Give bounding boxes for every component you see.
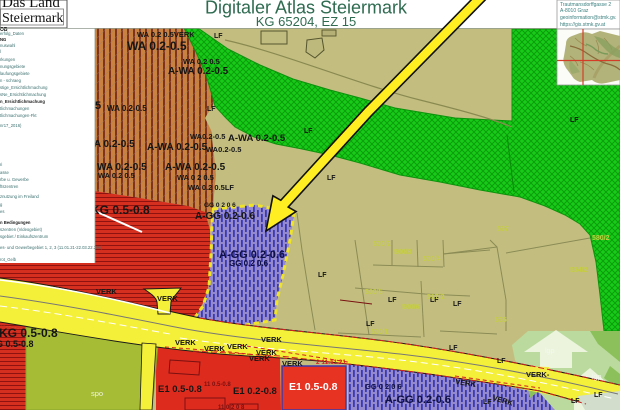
svg-text:517/2: 517/2 xyxy=(427,294,445,301)
svg-text:A-WA 0.2-0.5: A-WA 0.2-0.5 xyxy=(168,66,229,77)
svg-text:WA0.2-0.5: WA0.2-0.5 xyxy=(206,145,241,154)
svg-text:nr17_2016): nr17_2016) xyxy=(0,123,22,128)
svg-text:n - schraeg: n - schraeg xyxy=(0,78,22,83)
svg-text:sgebiet / Einkaufszentrum: sgebiet / Einkaufszentrum xyxy=(0,234,49,239)
svg-text:tlichmachungen: tlichmachungen xyxy=(0,106,30,111)
svg-text:sNe_Ersichtlichmachung: sNe_Ersichtlichmachung xyxy=(0,92,47,97)
svg-text:es- und Gewerbegebiet 1, 2, 3: es- und Gewerbegebiet 1, 2, 3 (11.01.21-… xyxy=(0,245,103,250)
svg-text:ri: ri xyxy=(0,162,2,167)
svg-text:WA 0 2 0.5: WA 0 2 0.5 xyxy=(177,173,214,182)
svg-text:A-WA 0.2-0.5: A-WA 0.2-0.5 xyxy=(147,142,208,153)
svg-text:WA 0.2 0.5LF: WA 0.2 0.5LF xyxy=(188,183,234,192)
svg-text:500/1: 500/1 xyxy=(371,329,389,336)
svg-text:A-8010 Graz: A-8010 Graz xyxy=(560,8,589,14)
svg-text:11 0 2 0 8: 11 0 2 0 8 xyxy=(218,405,245,410)
svg-text:szentren (Videogebiet): szentren (Videogebiet) xyxy=(0,227,43,232)
svg-text:LF: LF xyxy=(207,106,216,113)
svg-text:VERK: VERK xyxy=(157,294,178,303)
svg-text:LF: LF xyxy=(214,33,223,40)
svg-text:VERK: VERK xyxy=(175,338,196,347)
svg-text:LF: LF xyxy=(453,301,462,308)
svg-text:VERK: VERK xyxy=(204,344,225,353)
svg-text:WA 0.2-0.5: WA 0.2-0.5 xyxy=(107,104,147,113)
svg-text:https://gis.stmk.gv.at: https://gis.stmk.gv.at xyxy=(560,22,606,28)
svg-text:LF: LF xyxy=(304,128,313,135)
svg-text:n Bedingungen: n Bedingungen xyxy=(0,220,31,225)
svg-text:11 0.5-0.8: 11 0.5-0.8 xyxy=(204,382,231,388)
svg-text:WA 0.2 0.5VERK: WA 0.2 0.5VERK xyxy=(137,30,195,39)
svg-text:E1 0.2-0.8: E1 0.2-0.8 xyxy=(233,386,277,397)
svg-text:LF: LF xyxy=(388,297,397,304)
svg-text:LF: LF xyxy=(366,321,375,328)
svg-text:l: l xyxy=(0,49,1,54)
svg-text:535: 535 xyxy=(495,317,507,324)
svg-text:n_Ersichtlichmachung: n_Ersichtlichmachung xyxy=(0,99,45,104)
svg-text:VERK: VERK xyxy=(96,287,117,296)
svg-text:GG 0.2 0.6: GG 0.2 0.6 xyxy=(229,259,269,268)
svg-text:tlichmachungen-Fkt: tlichmachungen-Fkt xyxy=(0,113,37,118)
svg-text:VERK: VERK xyxy=(227,342,248,351)
svg-text:E1 0.5-0.8: E1 0.5-0.8 xyxy=(289,381,338,393)
svg-text:asse: asse xyxy=(0,170,10,175)
svg-text:534/2: 534/2 xyxy=(570,267,588,274)
svg-text:VERK: VERK xyxy=(249,354,270,363)
svg-text:nuswahl: nuswahl xyxy=(0,43,15,48)
svg-text:rot_Gelb: rot_Gelb xyxy=(0,257,17,262)
svg-text:LF: LF xyxy=(318,272,327,279)
svg-text:500/3: 500/3 xyxy=(394,249,412,256)
svg-text:WA0.2-0.5: WA0.2-0.5 xyxy=(190,132,225,141)
svg-text:VERK: VERK xyxy=(261,335,282,344)
svg-text:rbe u. Gewerbe: rbe u. Gewerbe xyxy=(0,177,30,182)
svg-text:lgp: lgp xyxy=(545,348,554,355)
svg-text:A-WA 0.2-0.5: A-WA 0.2-0.5 xyxy=(228,133,286,144)
svg-text:2 11.11.21: 2 11.11.21 xyxy=(316,359,346,366)
svg-text:KG 65204, EZ 15: KG 65204, EZ 15 xyxy=(256,14,356,29)
svg-text:A-GG 0.2-0.6: A-GG 0.2-0.6 xyxy=(385,394,451,406)
svg-text:LF: LF xyxy=(571,398,580,405)
svg-text:GG 0 2 0 6: GG 0 2 0 6 xyxy=(365,382,402,391)
svg-text:500/2: 500/2 xyxy=(373,241,391,248)
svg-text:stige_Ersichtlichmachung: stige_Ersichtlichmachung xyxy=(0,85,48,90)
svg-text:LF: LF xyxy=(327,175,336,182)
svg-text:LF: LF xyxy=(483,399,492,406)
svg-text:KG 0.5-0.8: KG 0.5-0.8 xyxy=(0,326,58,340)
svg-text:NG: NG xyxy=(0,37,6,42)
svg-text:WA 0.2 0.5: WA 0.2 0.5 xyxy=(183,57,220,66)
svg-text:rkungen: rkungen xyxy=(0,57,16,62)
svg-text:WA 0.2-0.5: WA 0.2-0.5 xyxy=(127,39,187,53)
svg-text:WA 0.2 0.5: WA 0.2 0.5 xyxy=(98,171,135,180)
svg-text:GG 0 2 0 6: GG 0 2 0 6 xyxy=(204,202,236,209)
svg-text:lgp: lgp xyxy=(592,374,601,381)
svg-text:A-WA 0.2-0.5: A-WA 0.2-0.5 xyxy=(165,162,226,173)
svg-text:5: 5 xyxy=(95,100,101,112)
svg-text:geoinformation@stmk.gv.: geoinformation@stmk.gv. xyxy=(560,15,616,21)
svg-text:es: es xyxy=(0,209,4,214)
svg-text:G 0.5-0.8: G 0.5-0.8 xyxy=(0,339,34,349)
svg-text:nungsgebiete: nungsgebiete xyxy=(0,64,26,69)
svg-text:500/6: 500/6 xyxy=(402,304,420,311)
svg-text:LF: LF xyxy=(449,345,458,352)
svg-text:LF: LF xyxy=(570,117,579,124)
svg-text:Steiermark: Steiermark xyxy=(2,11,63,26)
svg-text:VERK-: VERK- xyxy=(526,370,550,379)
svg-text:A-GG 0.2-0.6: A-GG 0.2-0.6 xyxy=(195,211,255,222)
svg-text:LF: LF xyxy=(594,392,603,399)
svg-text:spo: spo xyxy=(91,389,103,398)
svg-text:597: 597 xyxy=(497,226,509,233)
svg-text:znutzung im Freiland: znutzung im Freiland xyxy=(0,194,40,199)
svg-text:ftszentren: ftszentren xyxy=(0,184,19,189)
svg-text:500/4: 500/4 xyxy=(423,256,441,263)
svg-text:VERK: VERK xyxy=(282,359,303,368)
svg-text:KG 0.5-0.8: KG 0.5-0.8 xyxy=(91,203,150,217)
svg-text:580/2: 580/2 xyxy=(592,235,610,242)
svg-text:500/5: 500/5 xyxy=(365,289,383,296)
svg-text:LF: LF xyxy=(497,358,506,365)
svg-text:E1 0.5-0.8: E1 0.5-0.8 xyxy=(158,384,202,395)
svg-text:laufungsgebiete: laufungsgebiete xyxy=(0,71,30,76)
svg-text:erfolg_Daten: erfolg_Daten xyxy=(0,31,25,36)
